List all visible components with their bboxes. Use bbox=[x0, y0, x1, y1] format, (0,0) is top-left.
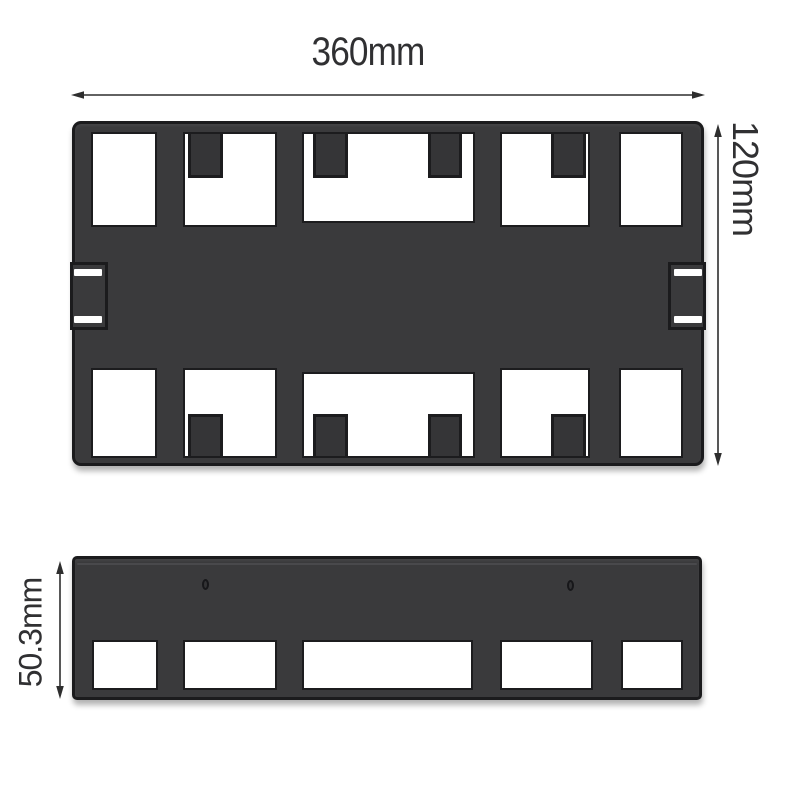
tab bbox=[428, 414, 462, 458]
clip-slot bbox=[674, 316, 702, 323]
cutout bbox=[500, 640, 593, 690]
edge-highlight bbox=[77, 563, 697, 565]
cutout bbox=[92, 640, 158, 690]
dimension-arrow-horizontal bbox=[70, 88, 706, 102]
tab bbox=[188, 414, 223, 458]
dimension-label-side-height: 50.3mm bbox=[13, 566, 50, 700]
cutout bbox=[621, 640, 683, 690]
clip-slot bbox=[674, 269, 702, 276]
tab bbox=[428, 132, 462, 178]
cutout bbox=[619, 132, 683, 227]
cutout bbox=[302, 640, 473, 690]
tab bbox=[313, 414, 348, 458]
front-view-plate bbox=[72, 556, 702, 700]
screw-hole bbox=[567, 580, 574, 591]
clip-slot bbox=[74, 269, 102, 276]
cutout bbox=[183, 640, 277, 690]
dimension-label-width: 360mm bbox=[289, 30, 447, 75]
side-clip bbox=[668, 262, 706, 330]
screw-hole bbox=[202, 579, 209, 590]
side-clip bbox=[70, 262, 108, 330]
tab bbox=[551, 132, 586, 178]
dimension-arrow-vertical-right bbox=[711, 123, 725, 467]
cutout bbox=[91, 132, 157, 227]
tab bbox=[188, 132, 223, 178]
clip-slot bbox=[74, 316, 102, 323]
cutout bbox=[619, 368, 683, 458]
tab bbox=[551, 414, 586, 458]
dimension-arrow-vertical-left bbox=[53, 561, 67, 699]
dimension-label-height: 120mm bbox=[724, 121, 766, 471]
tab bbox=[313, 132, 348, 178]
cutout bbox=[91, 368, 157, 458]
top-view-plate bbox=[72, 121, 704, 466]
